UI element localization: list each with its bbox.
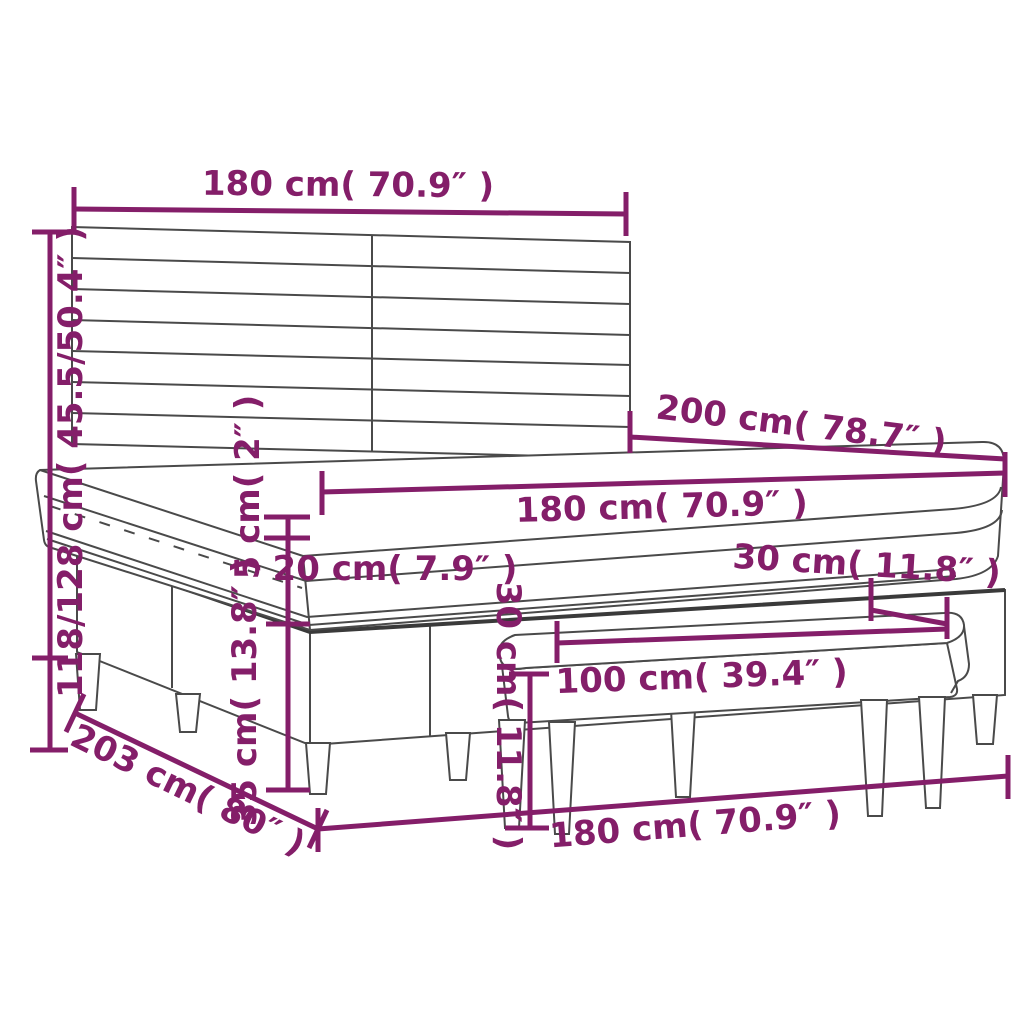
bench-height-label: 30 cm( 11.8″ ) xyxy=(488,582,528,851)
bench-leg xyxy=(919,697,945,808)
bed-dimension-diagram: 180 cm( 70.9″ ) 118/128 cm( 45.5/50.4″ )… xyxy=(0,0,1024,1024)
floor-width-label: 180 cm( 70.9″ ) xyxy=(548,794,842,857)
bed-leg xyxy=(176,694,200,732)
headboard xyxy=(72,227,630,458)
diagram-canvas: 180 cm( 70.9″ ) 118/128 cm( 45.5/50.4″ )… xyxy=(0,0,1024,1024)
topper-height-label: 5 cm( 2″ ) xyxy=(228,395,268,580)
bench xyxy=(499,613,969,834)
bed-leg xyxy=(306,743,330,794)
bed-leg xyxy=(446,733,470,780)
total-height-label: 118/128 cm( 45.5/50.4″ ) xyxy=(51,226,91,698)
bed-leg xyxy=(973,695,997,744)
headboard-width-label: 180 cm( 70.9″ ) xyxy=(202,164,495,207)
bench-leg xyxy=(671,710,695,797)
bench-leg xyxy=(861,700,887,816)
base-height-label: 35 cm( 13.8″ ) xyxy=(225,558,265,827)
mattress-height-label: 20 cm( 7.9″ ) xyxy=(273,549,518,589)
mattress-width-label: 180 cm( 70.9″ ) xyxy=(515,483,808,531)
